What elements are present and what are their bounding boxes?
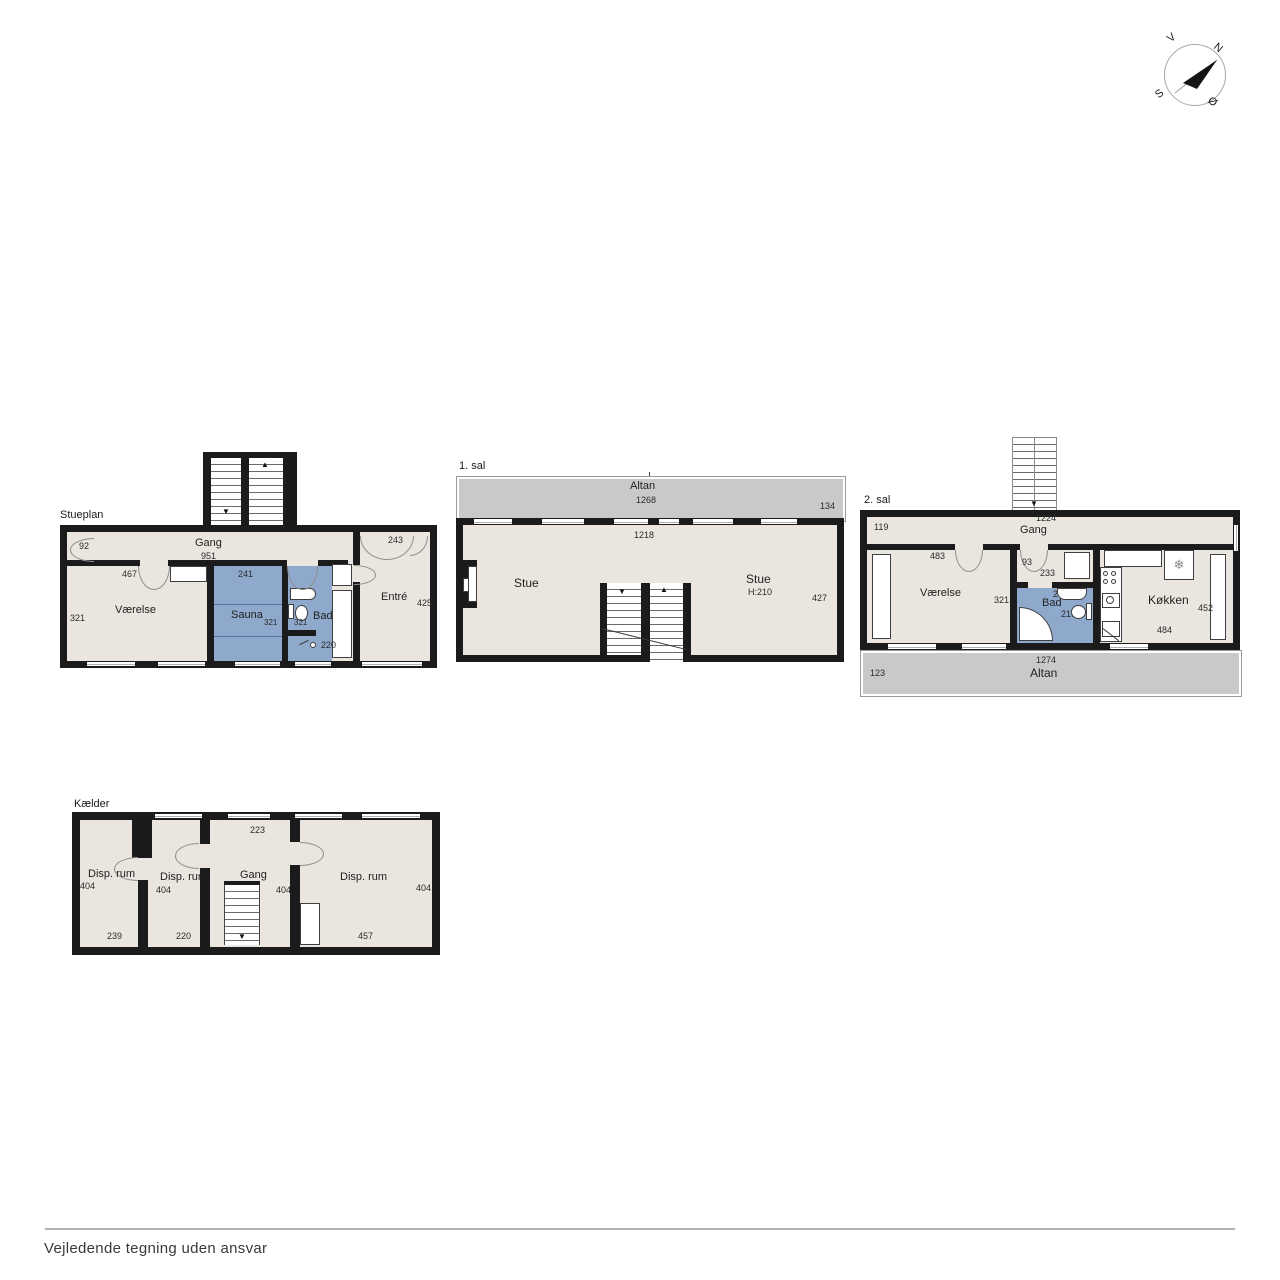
dim-gang-top: 223: [250, 825, 265, 835]
dim-disp3-width: 457: [358, 931, 373, 941]
chimney: [132, 820, 152, 858]
wall-segment: [290, 820, 300, 842]
room-label-stue-right: Stue: [746, 572, 771, 586]
door-arc: [354, 565, 376, 585]
window: [362, 662, 422, 666]
window: [542, 519, 584, 524]
window: [155, 814, 202, 818]
room-label-disp1: Disp. rum: [88, 868, 135, 880]
room-label-disp3: Disp. rum: [340, 871, 387, 883]
dim-entre-right: 425: [417, 598, 432, 608]
wall-stub: [288, 630, 316, 636]
window: [888, 644, 936, 649]
closet: [170, 566, 207, 582]
sauna-bench-line: [214, 604, 282, 605]
dim-sauna-width: 321: [264, 618, 277, 627]
dim-disp2-width: 220: [176, 931, 191, 941]
window: [228, 814, 270, 818]
dim-gang-height: 404: [276, 885, 291, 895]
door-arc: [287, 566, 318, 590]
dim-altan-width: 1268: [636, 495, 656, 505]
stair-arrow-down-icon: ▼: [222, 508, 230, 516]
room-label-sauna: Sauna: [231, 609, 263, 621]
dim-inner-width: 1218: [634, 530, 654, 540]
room-label-koekken: Køkken: [1148, 593, 1189, 607]
room-label-stue-left: Stue: [514, 576, 539, 590]
stair-flight-up: [249, 458, 283, 534]
dim-disp3-height: 404: [416, 883, 431, 893]
room-label-altan: Altan: [1030, 666, 1057, 680]
wall-segment: [1093, 550, 1100, 643]
door-arc: [138, 566, 170, 590]
dim-ceiling-height: H:210: [748, 587, 772, 597]
wall-segment: [353, 582, 360, 661]
hob-burner-icon: [1103, 579, 1108, 584]
window: [962, 644, 1006, 649]
hob-burner-icon: [1111, 579, 1116, 584]
dim-bad-drain: 220: [321, 640, 336, 650]
wall-segment: [867, 544, 955, 550]
compass-rose: V N S Ø: [1152, 30, 1238, 116]
room-label-disp2: Disp. rum: [160, 871, 207, 883]
fireplace-notch: [463, 578, 469, 592]
dim-gang-width: 1224: [1036, 513, 1056, 523]
dim-vaerelse-top: 467: [122, 569, 137, 579]
window: [761, 519, 797, 524]
toilet-tank: [1086, 603, 1092, 620]
floorplan-sheet: V N S Ø Stueplan ▼ ▲: [0, 0, 1280, 1280]
plan-title-stueplan: Stueplan: [60, 509, 103, 521]
plan-title-second-floor: 2. sal: [864, 494, 890, 506]
dim-lobby-width: 93: [1022, 557, 1032, 567]
toilet-tank: [288, 604, 294, 619]
kitchen-counter: [1104, 550, 1162, 567]
window: [1234, 525, 1238, 551]
stair-arrow-down-icon: ▼: [1030, 500, 1038, 508]
wall-segment: [207, 566, 214, 661]
dimension-tick: [649, 472, 650, 476]
dim-stue-right: 427: [812, 593, 827, 603]
room-label-entre: Entré: [381, 591, 407, 603]
toilet-fixture: [1071, 605, 1086, 619]
room-label-vaerelse: Værelse: [115, 604, 156, 616]
window: [1110, 644, 1148, 649]
drain-icon: [310, 642, 316, 648]
dim-gang-left: 119: [874, 522, 888, 532]
wall-segment: [200, 820, 210, 844]
window: [693, 519, 733, 524]
dim-disp2-height: 404: [156, 885, 171, 895]
floorplan-second-floor: ▼ 2. sal 119 1224 Gang 483 Værelse 321 9…: [860, 437, 1240, 695]
room-label-gang: Gang: [195, 537, 222, 549]
stair-arrow-up-icon: ▲: [261, 461, 269, 469]
stair-arrow-down-icon: ▼: [238, 933, 246, 941]
dim-vaerelse-left: 321: [70, 613, 85, 623]
sink-fixture: [1057, 588, 1087, 600]
dim-altan-left: 123: [870, 668, 885, 678]
floorplan-basement: Kælder ▼ 223 Disp. rum 404 239 Disp. rum…: [72, 795, 440, 957]
window: [87, 662, 135, 666]
stair-arrow-down-icon: ▼: [618, 588, 626, 596]
tall-cabinet: [1210, 554, 1226, 640]
dim-sauna-top: 241: [238, 569, 253, 579]
dim-door-left: 92: [79, 541, 89, 551]
closet: [872, 554, 891, 639]
compass-needle-icon: [1152, 30, 1238, 116]
window: [614, 519, 648, 524]
window: [235, 662, 280, 666]
dim-lobby-depth: 233: [1040, 568, 1055, 578]
hob-burner-icon: [1103, 571, 1108, 576]
stair-wall: [683, 583, 691, 662]
window: [158, 662, 205, 666]
room-label-vaerelse: Værelse: [920, 587, 961, 599]
dim-disp1-width: 239: [107, 931, 122, 941]
closet: [1064, 552, 1090, 579]
kitchen-sink-bowl: [1106, 596, 1114, 604]
disclaimer-text: Vejledende tegning uden ansvar: [44, 1240, 267, 1257]
stair-wall: [641, 583, 650, 662]
room-label-bad: Bad: [1042, 597, 1062, 609]
dim-bad-width: 321: [294, 618, 307, 627]
door-arc: [955, 550, 983, 572]
room-label-bad: Bad: [313, 610, 333, 622]
dim-altan-width: 1274: [1036, 655, 1056, 665]
dim-koekken-right: 452: [1198, 603, 1213, 613]
stair-flight-down: [211, 458, 241, 528]
sauna-bench-line: [214, 636, 282, 637]
dim-vaerelse-top: 483: [930, 551, 945, 561]
plan-title-basement: Kælder: [74, 798, 109, 810]
room-label-gang: Gang: [240, 869, 267, 881]
door-niche: [300, 903, 320, 945]
door-arc: [175, 843, 199, 869]
dim-disp1-height: 404: [80, 881, 95, 891]
dim-vaerelse-right: 321: [994, 595, 1009, 605]
dim-gang-width: 951: [201, 551, 216, 561]
footer-divider: [45, 1228, 1235, 1230]
wall-segment: [138, 880, 148, 947]
window: [362, 814, 420, 818]
plan-title-first-floor: 1. sal: [459, 460, 485, 472]
stair-arrow-up-icon: ▲: [660, 586, 668, 594]
freezer-icon: ❄: [1165, 557, 1193, 573]
wall-segment: [353, 532, 360, 565]
dim-door-right: 243: [388, 535, 403, 545]
window: [295, 662, 331, 666]
door-arc: [300, 842, 324, 866]
floorplan-first-floor: 1. sal Altan 1268 134 1218 ▼ ▲ Stue S: [456, 460, 844, 662]
hob-burner-icon: [1111, 571, 1116, 576]
wall-segment: [1010, 550, 1017, 643]
room-label-altan: Altan: [630, 480, 655, 492]
dim-altan-side: 134: [820, 501, 835, 511]
dim-koekken-bottom: 484: [1157, 625, 1172, 635]
freezer: ❄: [1164, 550, 1194, 580]
floorplan-stueplan: Stueplan ▼ ▲: [60, 452, 437, 668]
wall-segment: [1048, 544, 1093, 550]
window: [659, 519, 679, 524]
stair-flight-up: [650, 583, 683, 662]
wall-segment: [290, 865, 300, 947]
room-label-gang: Gang: [1020, 524, 1047, 536]
door-arc: [360, 536, 414, 560]
wardrobe: [332, 564, 352, 586]
window: [295, 814, 342, 818]
fireplace-notch: [468, 566, 477, 602]
stair-wall: [600, 583, 607, 662]
window: [474, 519, 512, 524]
